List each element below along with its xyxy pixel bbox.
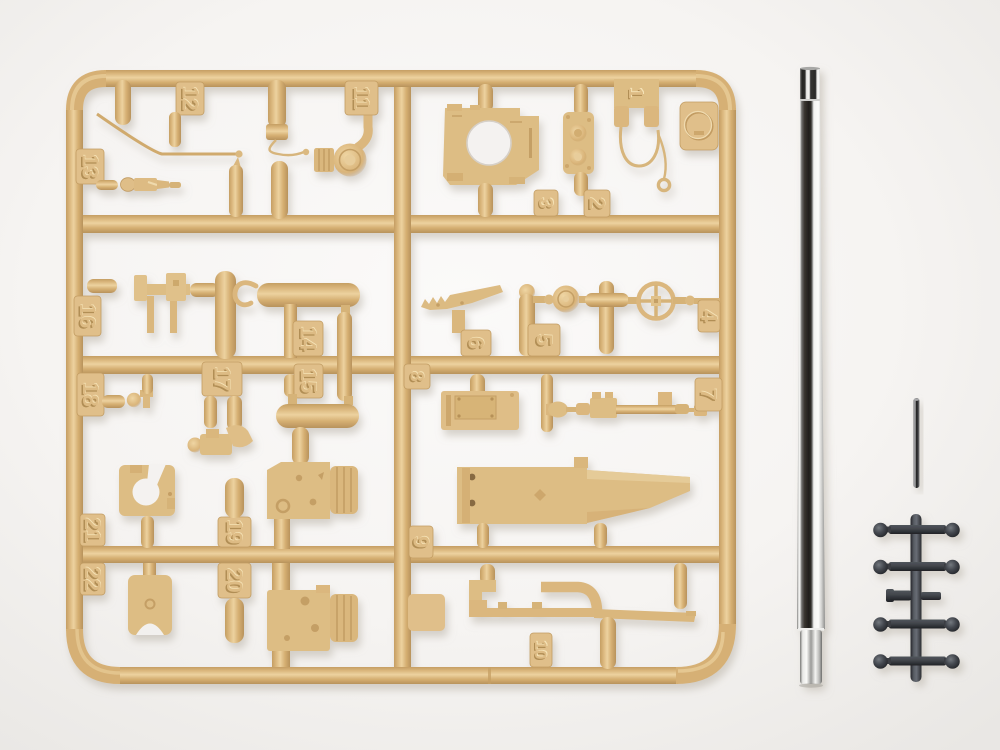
svg-text:16: 16 [75, 304, 100, 328]
svg-text:5: 5 [531, 334, 556, 346]
svg-text:2: 2 [584, 197, 609, 209]
svg-text:4: 4 [696, 310, 721, 323]
svg-text:21: 21 [80, 518, 105, 542]
svg-text:13: 13 [77, 154, 102, 178]
svg-text:19: 19 [222, 520, 247, 544]
svg-text:12: 12 [177, 86, 202, 110]
svg-text:3: 3 [534, 197, 556, 208]
svg-text:18: 18 [78, 382, 103, 406]
svg-text:11: 11 [349, 86, 374, 109]
svg-text:9: 9 [408, 536, 433, 548]
svg-text:1: 1 [624, 87, 646, 98]
svg-text:14: 14 [295, 326, 320, 351]
svg-text:20: 20 [222, 568, 247, 592]
svg-text:8: 8 [405, 371, 426, 382]
svg-text:7: 7 [696, 388, 721, 400]
svg-text:22: 22 [80, 567, 105, 591]
svg-text:17: 17 [209, 367, 234, 391]
svg-text:15: 15 [296, 369, 321, 393]
svg-text:6: 6 [463, 337, 488, 349]
svg-text:10: 10 [531, 641, 550, 660]
